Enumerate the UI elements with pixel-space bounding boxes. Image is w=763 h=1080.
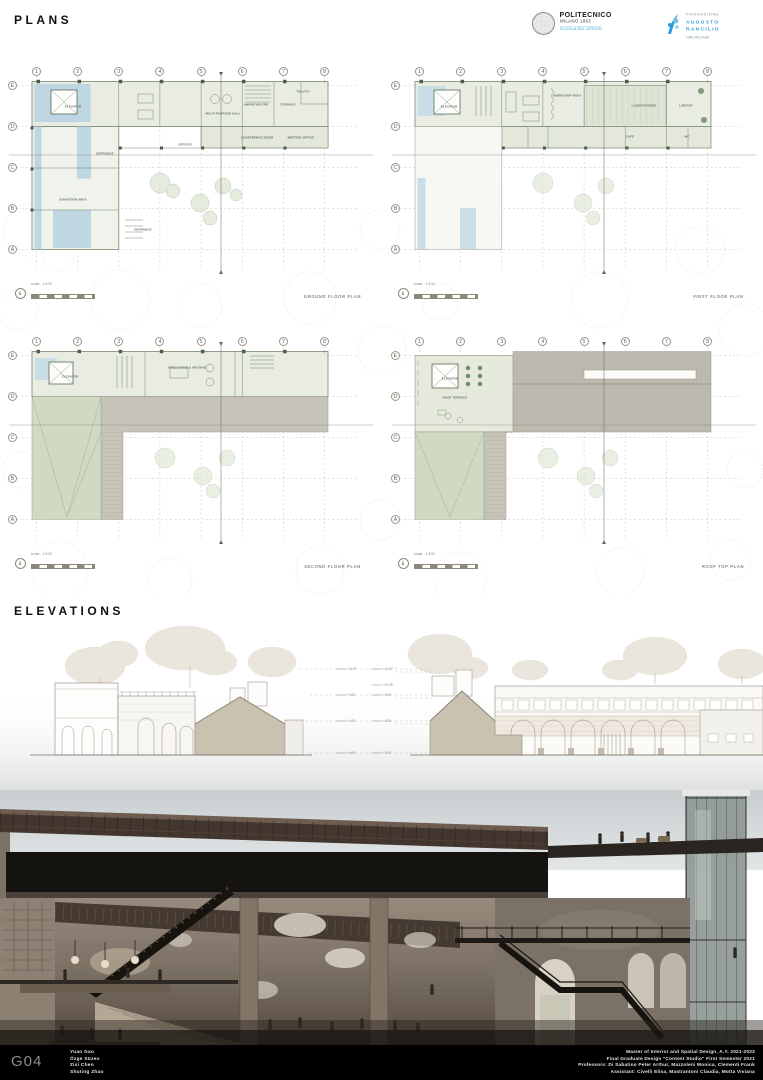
scale-note: scale - 1/100 [31, 282, 52, 287]
grid-bubble: 2 [73, 67, 82, 76]
grid-bubble: 4 [155, 67, 164, 76]
grid-columns: 12345678 [415, 67, 712, 76]
polimi-seal-icon [532, 12, 555, 35]
presentation-board: { "header": { "title": "PLANS", "polimi"… [0, 0, 763, 1080]
level-label: +9.05 [347, 694, 355, 697]
second-floor-plan-drawing [5, 328, 377, 578]
grid-bubble: A [8, 245, 17, 254]
grid-bubble: D [8, 122, 17, 131]
grid-bubble: 4 [155, 337, 164, 346]
grid-bubble: C [8, 163, 17, 172]
authors-list: Yuan Gao Özge Süzen Zixi Chen Shuting Zh… [70, 1049, 104, 1075]
grid-bubble: D [8, 392, 17, 401]
grid-bubble: 5 [197, 67, 206, 76]
right-elevation [410, 670, 763, 755]
grid-bubble: 8 [320, 337, 329, 346]
roof-top-plan: 12345678 EDCBA ELEVATOR ROOF TERRACE ROO… [388, 328, 760, 590]
room-label: OFFICES [178, 144, 192, 147]
north-arrow-icon [15, 288, 26, 299]
plan-caption: GROUND FLOOR PLAN [304, 294, 361, 299]
level-label: +4.25 [383, 720, 391, 723]
scale-bar [31, 294, 95, 299]
grid-bubble: 5 [197, 337, 206, 346]
far-line2: AUGUSTO [686, 19, 728, 25]
footer: G04 Yuan Gao Özge Süzen Zixi Chen Shutin… [0, 1045, 763, 1080]
room-label: ELEVATOR [62, 376, 79, 379]
first-floor-plan: 12345678 EDCBA ELEVATOR WORKSHOP AREA LA… [388, 58, 760, 320]
grid-bubble: B [391, 204, 400, 213]
far-subtitle: Villa Arconati [686, 35, 720, 40]
grid-bubble: 8 [703, 67, 712, 76]
elevations-section: +12.87 +9.05 +4.25 +0.00 +12.87 +10.35 +… [0, 618, 763, 790]
grid-columns: 12345678 [415, 337, 712, 346]
room-label: WC [684, 136, 689, 139]
room-label: ELEVATOR [65, 106, 82, 109]
plan-caption: ROOF TOP PLAN [702, 564, 744, 569]
grid-bubble: C [8, 433, 17, 442]
grid-bubble: 7 [279, 337, 288, 346]
scale-note: scale - 1/100 [414, 282, 435, 287]
grid-bubble: 1 [415, 67, 424, 76]
credits-block: Master of Interior and Spatial Design, A… [578, 1049, 755, 1075]
author-name: Shuting Zhao [70, 1068, 104, 1074]
grid-bubble: 8 [703, 337, 712, 346]
grid-bubble: 1 [415, 337, 424, 346]
far-logo: FONDAZIONE AUGUSTO RANCILIO Villa Arcona… [665, 12, 753, 44]
level-label: +0.00 [383, 752, 391, 755]
group-code: G04 [11, 1053, 42, 1070]
far-line3: RANCILIO [686, 26, 728, 32]
room-label: ROOF TERRACE [442, 397, 467, 400]
grid-bubble: E [391, 351, 400, 360]
grid-bubble: 2 [456, 337, 465, 346]
grid-bubble: 6 [621, 337, 630, 346]
grid-bubble: 1 [32, 67, 41, 76]
polimi-school: SCUOLA DEL DESIGN [560, 26, 602, 31]
level-label: +10.35 [383, 684, 393, 687]
polimi-place: MILANO 1863 [560, 19, 611, 23]
header-logos: POLITECNICO MILANO 1863 SCUOLA DEL DESIG… [532, 12, 754, 44]
plan-caption: FIRST FLOOR PLAN [694, 294, 744, 299]
room-label: CAFE [626, 136, 635, 139]
grid-bubble: 3 [497, 67, 506, 76]
far-leaf-icon [665, 12, 681, 36]
grid-bubble: C [391, 433, 400, 442]
grid-bubble: 7 [279, 67, 288, 76]
scale-bar [414, 564, 478, 569]
room-label: ELEVATOR [441, 106, 458, 109]
level-label: +9.05 [383, 694, 391, 697]
grid-bubble: B [8, 204, 17, 213]
grid-rows: EDCBA [391, 81, 400, 254]
scale-bar [414, 294, 478, 299]
room-label: STORAGE [280, 104, 295, 107]
grid-bubble: 6 [238, 67, 247, 76]
grid-rows: EDCBA [8, 351, 17, 524]
section-render-image [0, 790, 763, 1045]
grid-bubble: 7 [662, 67, 671, 76]
room-label: ENTRANCE [134, 229, 151, 232]
grid-bubble: E [391, 81, 400, 90]
section-render [0, 790, 763, 1045]
grid-bubble: A [391, 245, 400, 254]
room-label: CONFERENCE ROOM [241, 137, 273, 140]
room-label: LABORATORIES [632, 105, 657, 108]
north-arrow-icon [398, 558, 409, 569]
grid-bubble: D [391, 122, 400, 131]
grid-bubble: D [391, 392, 400, 401]
grid-bubble: 2 [456, 67, 465, 76]
grid-bubble: A [8, 515, 17, 524]
grid-bubble: 6 [238, 337, 247, 346]
grid-bubble: 3 [497, 337, 506, 346]
grid-bubble: 6 [621, 67, 630, 76]
elevations-drawing [0, 618, 763, 790]
grid-bubble: C [391, 163, 400, 172]
grid-bubble: E [8, 351, 17, 360]
credit-line: Professors: Di Sabatino Peter Arthur, Ma… [578, 1062, 755, 1068]
grid-bubble: 5 [580, 337, 589, 346]
far-line1: FONDAZIONE [686, 12, 720, 17]
grid-bubble: 2 [73, 337, 82, 346]
north-arrow-icon [15, 558, 26, 569]
credit-line: Assistant: Civelli Elisa, Mastrantoni Cl… [578, 1068, 755, 1074]
ground-floor-plan: 12345678 EDCBA ELEVATOR EXHIBITION AREA … [5, 58, 377, 320]
plans-title: PLANS [14, 13, 72, 27]
room-label: TOILETS [296, 91, 309, 94]
grid-bubble: 8 [320, 67, 329, 76]
scale-note: scale - 1/100 [414, 552, 435, 557]
room-label: LIBRARY [679, 105, 693, 108]
level-label: +12.87 [383, 668, 393, 671]
room-label: ENTRANCE [96, 153, 113, 156]
grid-bubble: E [8, 81, 17, 90]
scale-bar [31, 564, 95, 569]
level-label: +0.00 [347, 752, 355, 755]
grid-bubble: 3 [114, 67, 123, 76]
room-label: ELEVATOR [442, 378, 459, 381]
ground-floor-plan-drawing [5, 58, 377, 308]
plans-section: 12345678 EDCBA ELEVATOR EXHIBITION AREA … [0, 50, 763, 595]
grid-columns: 12345678 [32, 67, 329, 76]
grid-bubble: 7 [662, 337, 671, 346]
level-label: +12.87 [347, 668, 357, 671]
grid-bubble: 1 [32, 337, 41, 346]
roof-top-plan-drawing [388, 328, 760, 578]
room-label: EXHIBITION AREA [59, 199, 87, 202]
grid-columns: 12345678 [32, 337, 329, 346]
grid-rows: EDCBA [8, 81, 17, 254]
grid-bubble: 4 [538, 337, 547, 346]
grid-bubble: 3 [114, 337, 123, 346]
second-floor-plan: 12345678 EDCBA ELEVATOR VIDEO ROOM & ARC… [5, 328, 377, 590]
room-label: AMPHITHEATRE [244, 104, 269, 107]
grid-bubble: 4 [538, 67, 547, 76]
elevations-title: ELEVATIONS [14, 604, 124, 618]
scale-note: scale - 1/100 [31, 552, 52, 557]
room-label: MEETING OFFICE [288, 137, 315, 140]
grid-bubble: B [391, 474, 400, 483]
level-label: +4.25 [347, 720, 355, 723]
grid-bubble: A [391, 515, 400, 524]
grid-bubble: 5 [580, 67, 589, 76]
polimi-logo: POLITECNICO MILANO 1863 SCUOLA DEL DESIG… [532, 12, 653, 37]
grid-rows: EDCBA [391, 351, 400, 524]
room-label: MULTI-PURPOSE HALL [205, 113, 240, 116]
plan-caption: SECOND FLOOR PLAN [304, 564, 361, 569]
room-label: WORKSHOP AREA [553, 95, 581, 98]
grid-bubble: B [8, 474, 17, 483]
room-label: VIDEO ROOM & ARCHIVE [168, 367, 207, 370]
north-arrow-icon [398, 288, 409, 299]
